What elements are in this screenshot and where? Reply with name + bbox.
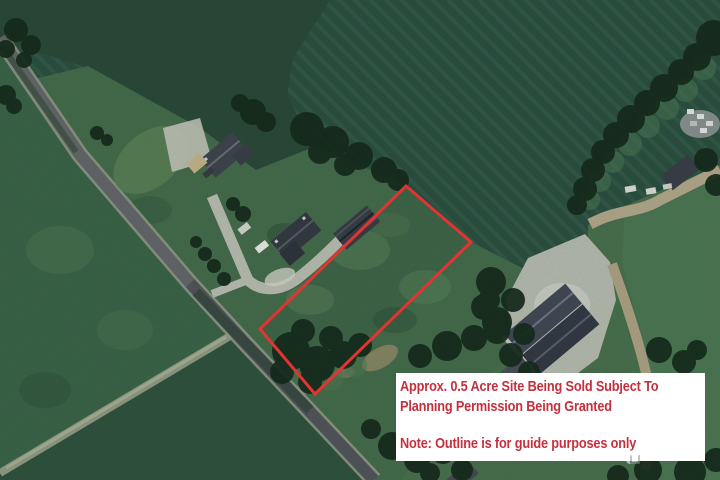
daft-logo-icon	[626, 450, 640, 464]
annotation-line-1: Approx. 0.5 Acre Site Being Sold Subject…	[400, 377, 659, 397]
annotation-note: Note: Outline is for guide purposes only	[400, 434, 659, 454]
annotation-line-2: Planning Permission Being Granted	[400, 397, 659, 417]
aerial-site-photo: Approx. 0.5 Acre Site Being Sold Subject…	[0, 0, 720, 480]
annotation-text: Approx. 0.5 Acre Site Being Sold Subject…	[400, 377, 659, 454]
daft-watermark: daft.ie	[626, 448, 690, 465]
daft-watermark-text: daft.ie	[644, 448, 690, 465]
